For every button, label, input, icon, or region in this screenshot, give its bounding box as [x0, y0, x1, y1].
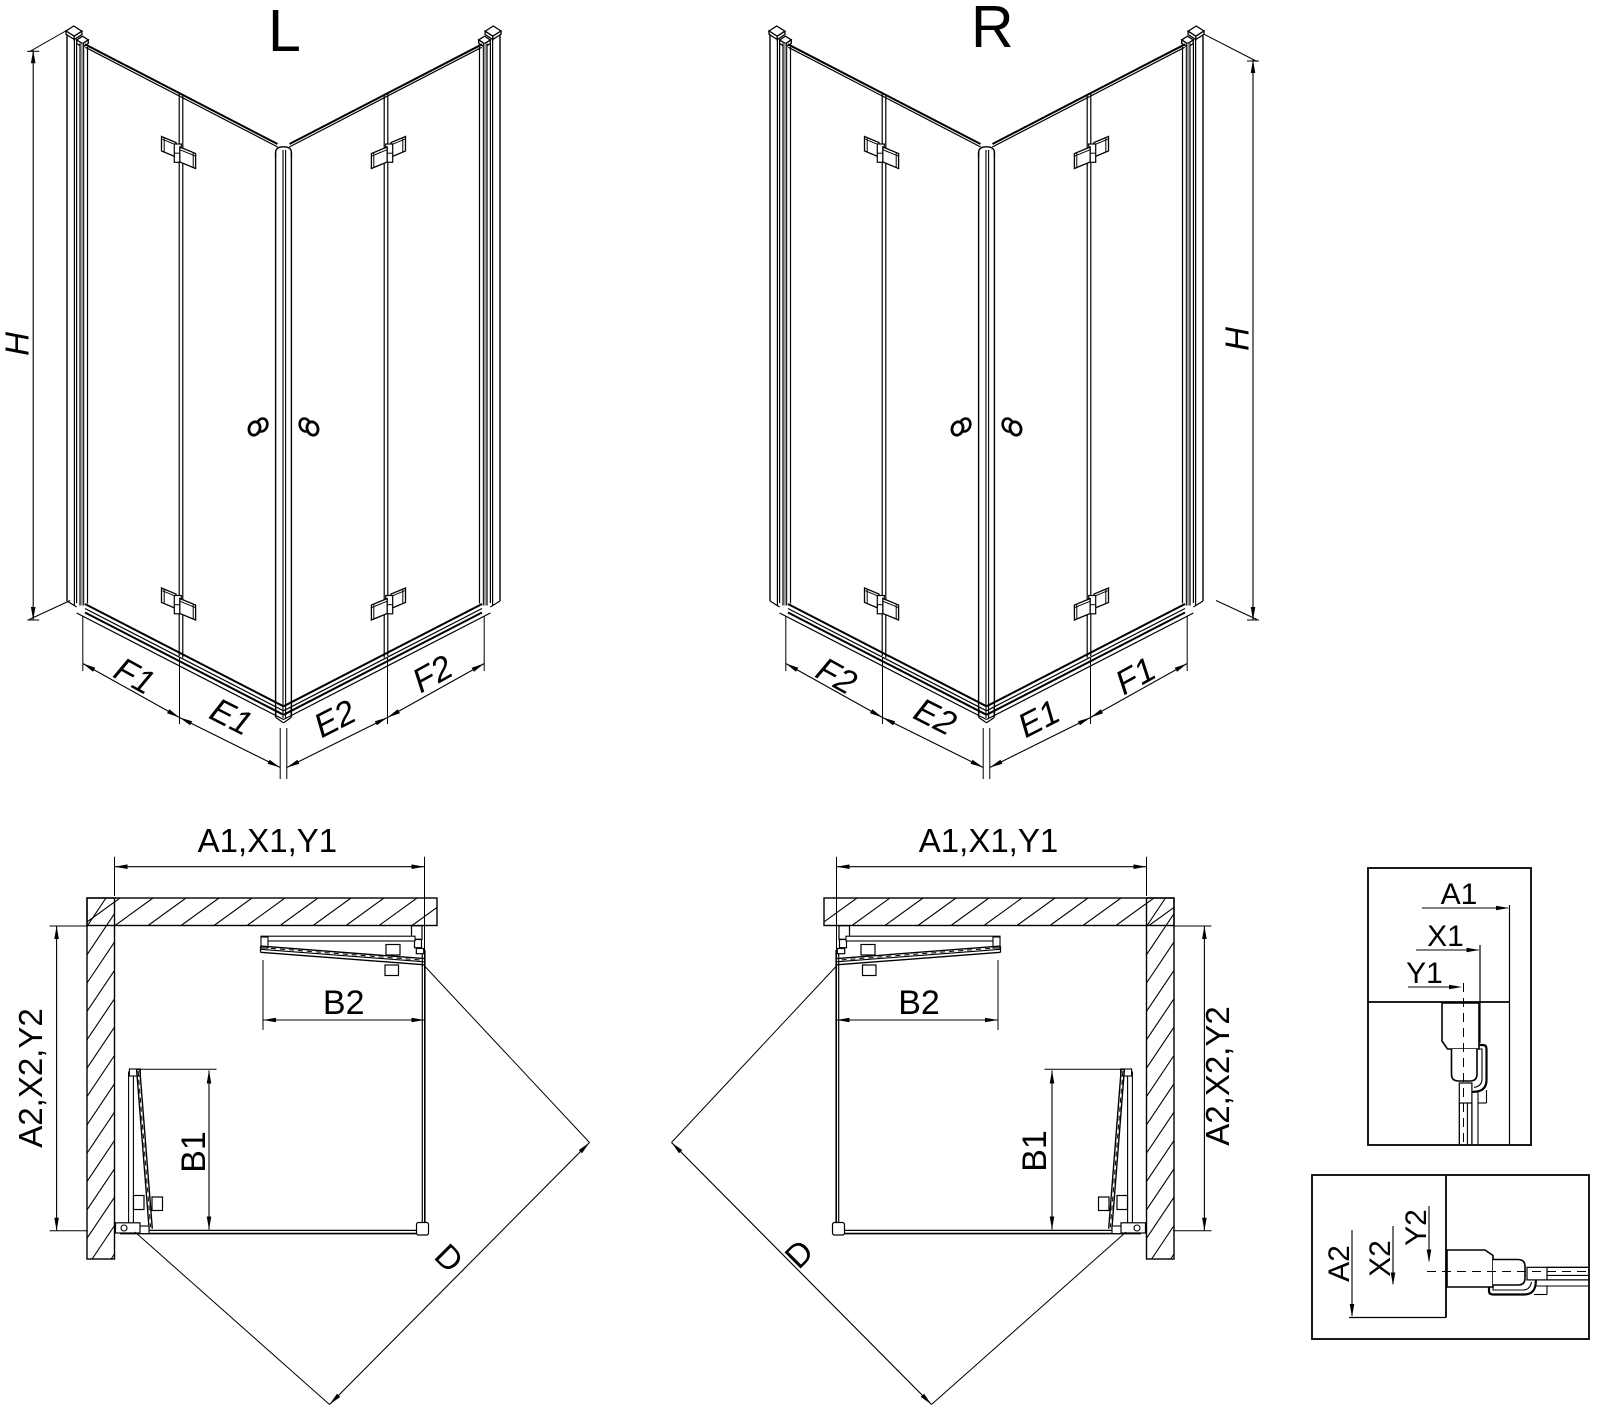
svg-text:H: H: [0, 332, 36, 356]
svg-text:A1: A1: [1441, 878, 1478, 911]
svg-text:A2,X2,Y2: A2,X2,Y2: [1199, 1006, 1236, 1145]
svg-text:L: L: [268, 0, 301, 64]
svg-text:X2: X2: [1364, 1240, 1397, 1277]
svg-text:H: H: [1219, 327, 1256, 351]
svg-text:A2,X2,Y2: A2,X2,Y2: [12, 1008, 49, 1147]
svg-text:X1: X1: [1427, 920, 1464, 953]
svg-text:A1,X1,Y1: A1,X1,Y1: [919, 822, 1058, 859]
svg-text:B1: B1: [175, 1131, 213, 1173]
svg-text:B2: B2: [323, 984, 365, 1022]
svg-text:R: R: [971, 0, 1014, 60]
svg-text:B2: B2: [898, 984, 940, 1022]
svg-text:A2: A2: [1323, 1245, 1356, 1282]
svg-text:Y2: Y2: [1400, 1209, 1433, 1246]
svg-text:Y1: Y1: [1406, 957, 1443, 990]
svg-text:A1,X1,Y1: A1,X1,Y1: [198, 822, 337, 859]
svg-text:B1: B1: [1016, 1130, 1054, 1172]
